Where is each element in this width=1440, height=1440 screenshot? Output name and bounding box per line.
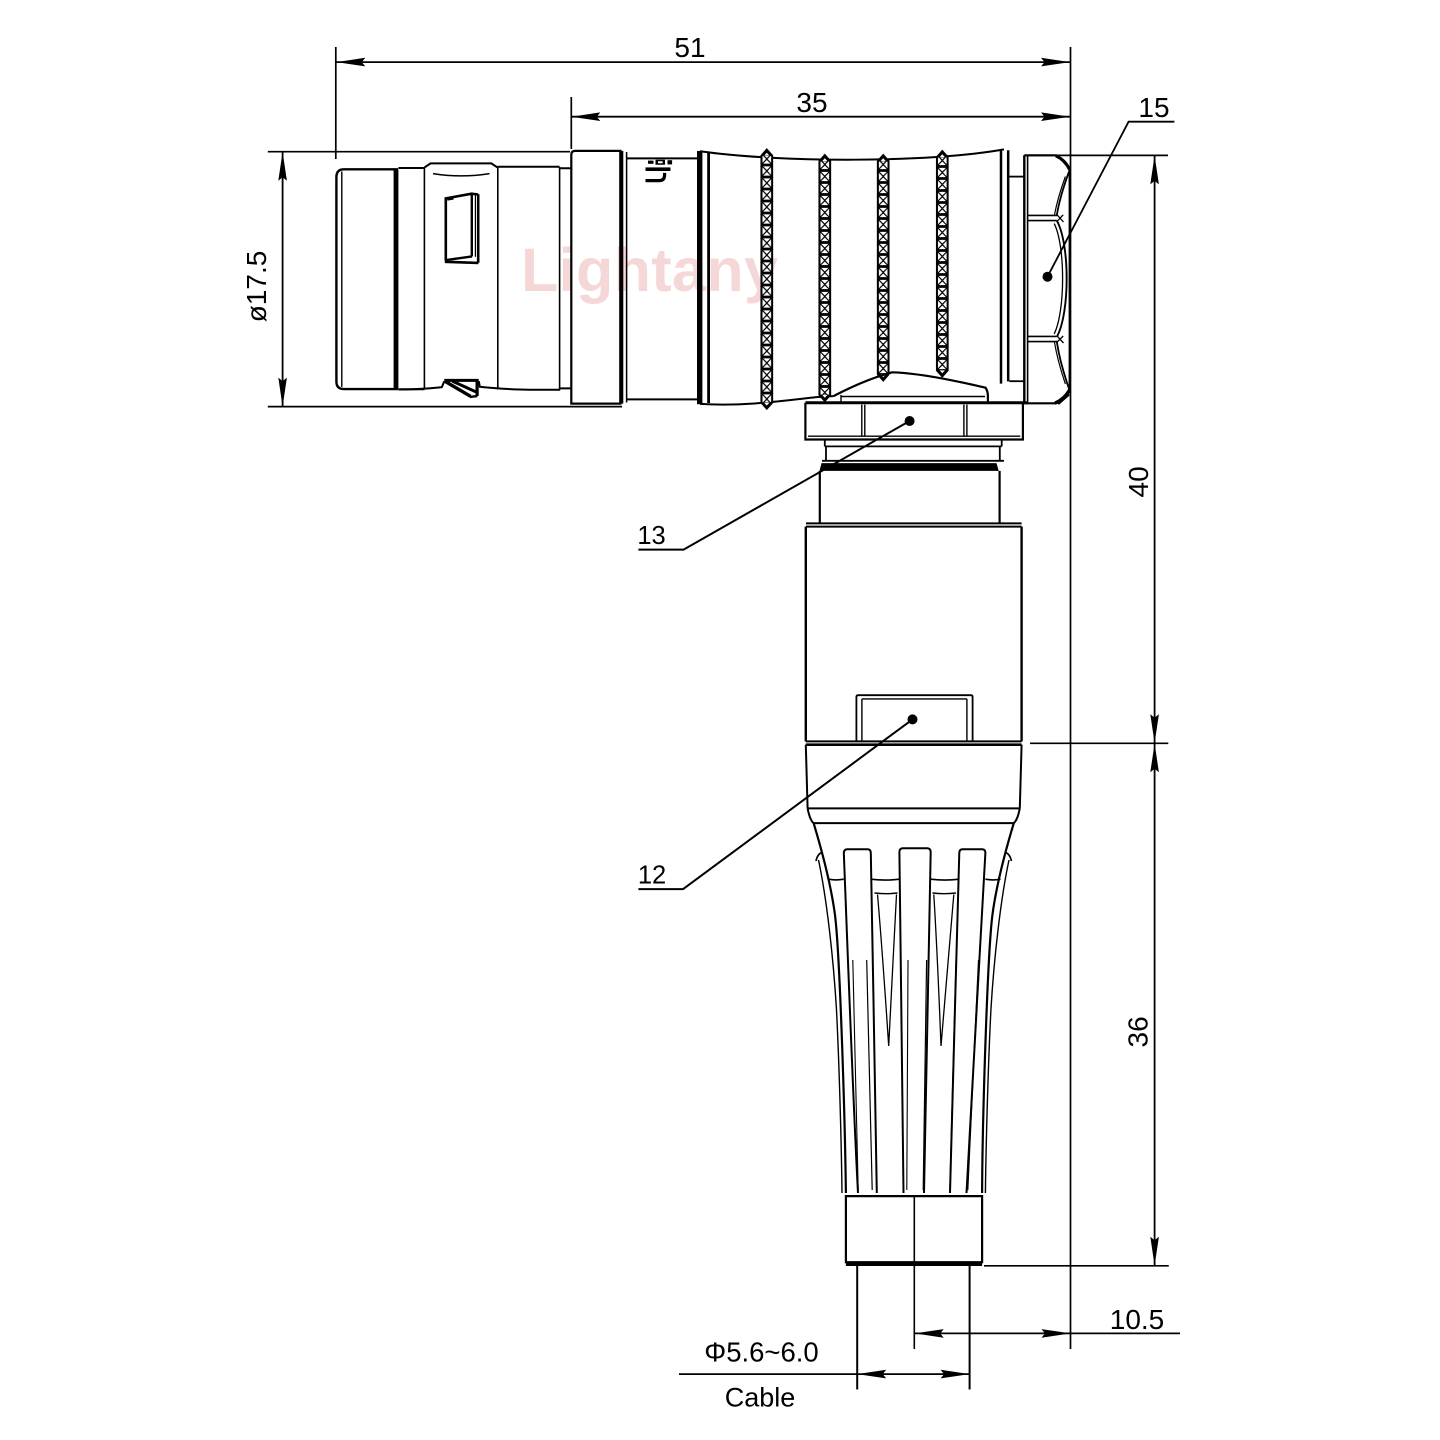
svg-text:36: 36	[1123, 1016, 1154, 1047]
svg-text:12: 12	[638, 862, 666, 890]
svg-text:13: 13	[637, 522, 665, 550]
svg-text:Φ5.6~6.0: Φ5.6~6.0	[704, 1337, 818, 1368]
svg-text:51: 51	[674, 32, 705, 63]
svg-text:10.5: 10.5	[1110, 1304, 1165, 1335]
svg-text:ø17.5: ø17.5	[241, 251, 272, 323]
svg-text:Cable: Cable	[725, 1383, 796, 1413]
svg-text:40: 40	[1123, 466, 1154, 497]
svg-text:15: 15	[1138, 92, 1169, 123]
svg-text:35: 35	[796, 87, 827, 118]
